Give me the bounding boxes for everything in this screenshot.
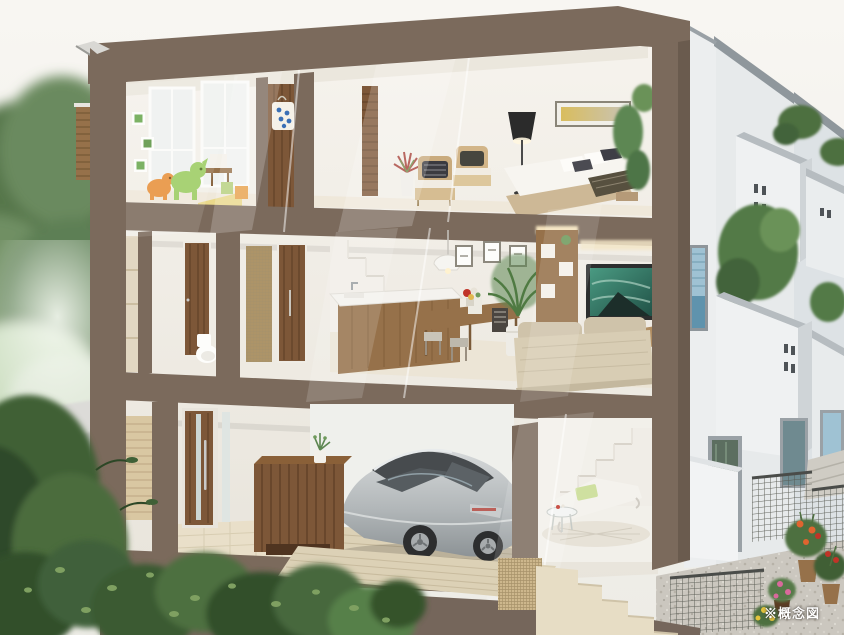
rattan-armchair [453, 146, 491, 186]
caption-note: ※概念図 [764, 603, 820, 622]
car-wheel [403, 525, 437, 559]
door-side-panel [222, 412, 230, 522]
side-slit-window [689, 245, 708, 331]
front-door [182, 408, 218, 528]
right-column-shade [678, 40, 690, 562]
house-cutaway-render: ※概念図 [0, 0, 844, 635]
woven-screen [498, 558, 542, 610]
main-house [76, 6, 690, 602]
